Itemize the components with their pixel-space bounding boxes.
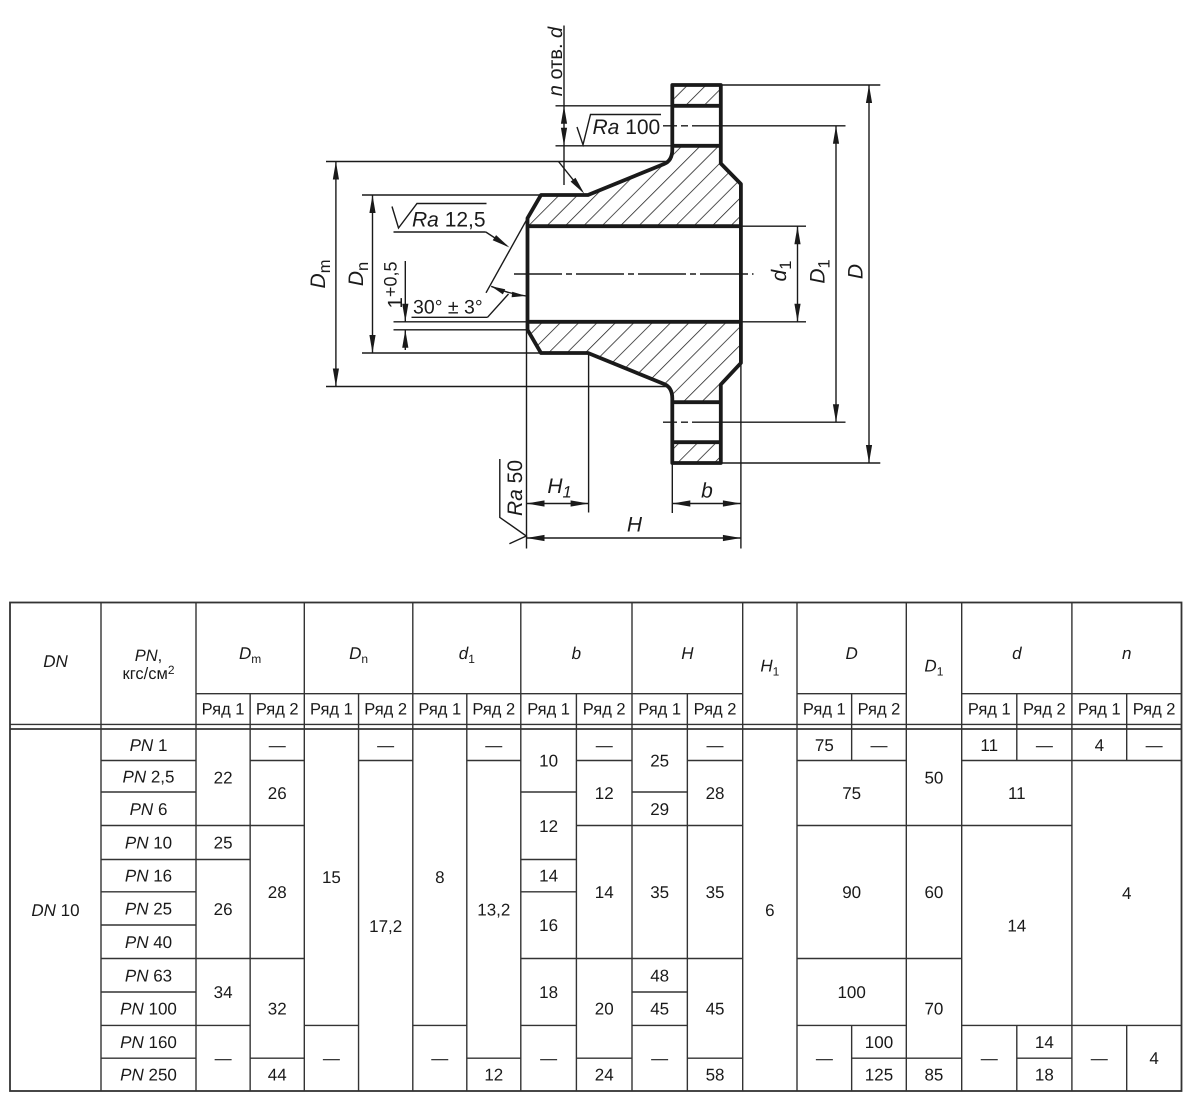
svg-text:Dm: Dm <box>307 260 334 289</box>
svg-text:85: 85 <box>924 1066 943 1085</box>
svg-text:13,2: 13,2 <box>477 900 510 919</box>
svg-text:50: 50 <box>924 768 943 787</box>
svg-text:—: — <box>816 1049 833 1068</box>
svg-text:25: 25 <box>650 752 669 771</box>
svg-text:35: 35 <box>706 883 725 902</box>
svg-text:14: 14 <box>1007 916 1026 935</box>
svg-text:125: 125 <box>865 1066 893 1085</box>
svg-text:PN 2,5: PN 2,5 <box>123 767 175 786</box>
svg-text:Ra 12,5: Ra 12,5 <box>412 209 486 232</box>
svg-text:Ряд 1: Ряд 1 <box>310 701 353 719</box>
svg-text:14: 14 <box>1035 1033 1054 1052</box>
svg-text:26: 26 <box>214 900 233 919</box>
svg-text:11: 11 <box>1008 784 1026 803</box>
svg-text:Ra 100: Ra 100 <box>593 116 661 139</box>
svg-text:PN 160: PN 160 <box>120 1033 177 1052</box>
svg-text:Ряд 2: Ряд 2 <box>1023 701 1066 719</box>
svg-text:58: 58 <box>706 1066 725 1085</box>
svg-text:17,2: 17,2 <box>369 917 402 936</box>
svg-text:25: 25 <box>214 834 233 853</box>
svg-text:—: — <box>651 1049 668 1068</box>
svg-text:34: 34 <box>214 983 233 1002</box>
svg-text:D: D <box>846 644 858 663</box>
svg-text:Ряд 2: Ряд 2 <box>472 701 515 719</box>
svg-text:1+0,5: 1+0,5 <box>381 262 408 309</box>
svg-text:PN,: PN, <box>135 647 163 665</box>
svg-text:Ряд 2: Ряд 2 <box>858 701 901 719</box>
svg-text:Ряд 2: Ряд 2 <box>1133 701 1176 719</box>
svg-text:28: 28 <box>268 883 287 902</box>
svg-text:4: 4 <box>1122 884 1131 903</box>
svg-text:26: 26 <box>268 784 287 803</box>
svg-text:D1: D1 <box>807 259 834 283</box>
svg-text:22: 22 <box>214 768 233 787</box>
svg-text:Ряд 1: Ряд 1 <box>202 701 245 719</box>
svg-text:75: 75 <box>815 736 834 755</box>
svg-text:6: 6 <box>765 901 774 920</box>
svg-text:Ряд 1: Ряд 1 <box>803 701 846 719</box>
svg-text:—: — <box>1146 736 1163 755</box>
svg-text:b: b <box>701 480 713 503</box>
svg-text:—: — <box>1036 736 1053 755</box>
svg-text:—: — <box>377 736 394 755</box>
svg-text:—: — <box>323 1049 340 1068</box>
svg-text:4: 4 <box>1149 1049 1158 1068</box>
svg-text:n отв. d: n отв. d <box>545 26 567 96</box>
svg-text:D1: D1 <box>924 657 943 679</box>
svg-text:70: 70 <box>924 999 943 1018</box>
svg-text:60: 60 <box>924 883 943 902</box>
svg-text:Ряд 1: Ряд 1 <box>638 701 681 719</box>
svg-text:Ряд 2: Ряд 2 <box>364 701 407 719</box>
svg-text:PN 16: PN 16 <box>125 867 172 886</box>
svg-text:12: 12 <box>595 784 614 803</box>
svg-text:—: — <box>540 1049 557 1068</box>
svg-text:H1: H1 <box>547 475 571 502</box>
svg-text:Dn: Dn <box>349 644 368 666</box>
svg-text:PN 6: PN 6 <box>130 800 168 819</box>
svg-text:—: — <box>215 1049 232 1068</box>
svg-text:H: H <box>681 644 694 663</box>
svg-text:Ряд 2: Ряд 2 <box>256 701 299 719</box>
svg-text:45: 45 <box>650 1000 669 1019</box>
svg-text:45: 45 <box>706 999 725 1018</box>
svg-text:—: — <box>596 736 613 755</box>
svg-text:—: — <box>1091 1049 1108 1068</box>
svg-text:кгс/см2: кгс/см2 <box>123 663 175 683</box>
svg-text:11: 11 <box>980 736 998 755</box>
svg-text:DN 10: DN 10 <box>31 901 79 920</box>
svg-text:—: — <box>269 736 286 755</box>
svg-text:29: 29 <box>650 800 669 819</box>
svg-text:32: 32 <box>268 999 287 1018</box>
svg-text:75: 75 <box>842 784 861 803</box>
svg-text:24: 24 <box>595 1066 614 1085</box>
svg-text:PN 1: PN 1 <box>130 736 168 755</box>
svg-text:PN 250: PN 250 <box>120 1066 177 1085</box>
svg-text:48: 48 <box>650 966 669 985</box>
svg-text:100: 100 <box>865 1033 893 1052</box>
svg-text:PN 10: PN 10 <box>125 834 172 853</box>
svg-text:12: 12 <box>539 817 558 836</box>
svg-text:20: 20 <box>595 999 614 1018</box>
svg-text:28: 28 <box>706 784 725 803</box>
svg-text:15: 15 <box>322 868 341 887</box>
svg-text:Ряд 2: Ряд 2 <box>694 701 737 719</box>
svg-text:DN: DN <box>43 652 68 671</box>
svg-text:18: 18 <box>1035 1066 1054 1085</box>
svg-text:PN 63: PN 63 <box>125 966 172 985</box>
svg-text:PN 40: PN 40 <box>125 933 172 952</box>
svg-text:H: H <box>627 514 643 537</box>
svg-text:—: — <box>485 736 502 755</box>
svg-text:H1: H1 <box>760 657 779 679</box>
svg-text:—: — <box>981 1049 998 1068</box>
svg-text:10: 10 <box>539 752 558 771</box>
svg-text:12: 12 <box>484 1066 503 1085</box>
svg-text:4: 4 <box>1095 736 1104 755</box>
svg-text:Ряд 1: Ряд 1 <box>1078 701 1121 719</box>
svg-text:d: d <box>1012 644 1022 663</box>
svg-text:b: b <box>572 644 581 663</box>
svg-text:Dn: Dn <box>345 262 372 286</box>
svg-text:Ряд 2: Ряд 2 <box>583 701 626 719</box>
svg-text:—: — <box>870 736 887 755</box>
svg-text:PN 25: PN 25 <box>125 899 172 918</box>
svg-text:14: 14 <box>539 867 558 886</box>
svg-text:Ряд 1: Ряд 1 <box>527 701 570 719</box>
svg-text:Ra 50: Ra 50 <box>504 460 527 516</box>
svg-text:D: D <box>845 264 868 279</box>
svg-text:Dm: Dm <box>239 644 261 666</box>
svg-text:PN 100: PN 100 <box>120 1000 177 1019</box>
svg-text:100: 100 <box>837 983 865 1002</box>
svg-text:35: 35 <box>650 883 669 902</box>
svg-text:90: 90 <box>842 883 861 902</box>
svg-text:—: — <box>431 1049 448 1068</box>
svg-text:Ряд 1: Ряд 1 <box>968 701 1011 719</box>
svg-text:Ряд 1: Ряд 1 <box>418 701 461 719</box>
svg-text:d1: d1 <box>768 261 795 282</box>
svg-text:14: 14 <box>595 883 614 902</box>
svg-text:d1: d1 <box>459 644 475 666</box>
svg-text:n: n <box>1122 644 1131 663</box>
svg-text:—: — <box>707 736 724 755</box>
svg-text:18: 18 <box>539 983 558 1002</box>
svg-text:8: 8 <box>435 868 444 887</box>
svg-text:16: 16 <box>539 916 558 935</box>
svg-text:30° ± 3°: 30° ± 3° <box>413 297 483 319</box>
svg-text:44: 44 <box>268 1066 287 1085</box>
